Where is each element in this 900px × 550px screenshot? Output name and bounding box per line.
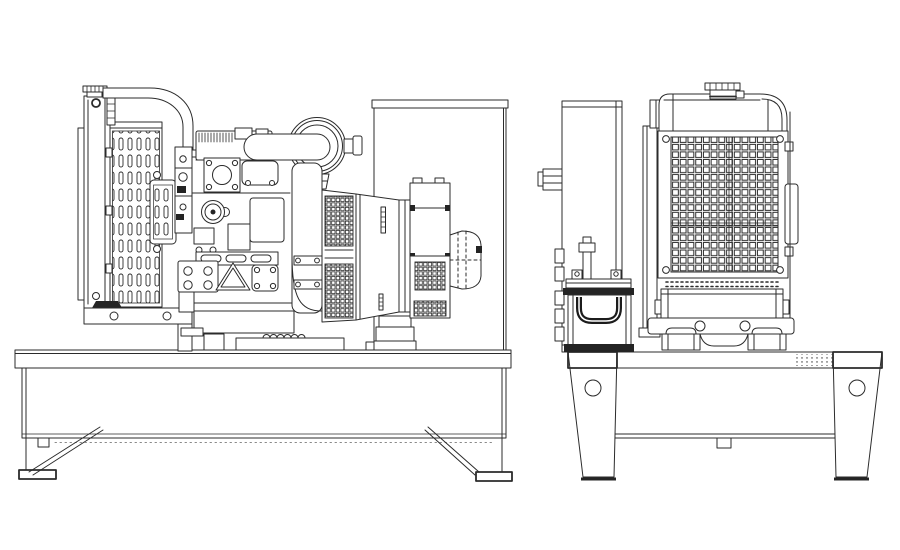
alternator (322, 190, 417, 350)
engine-mount-pedestal (204, 334, 224, 350)
front-left-leg (568, 352, 617, 477)
mid-pedestal (236, 338, 344, 350)
flywheel-housing (292, 163, 322, 313)
belt-guard-plate (150, 172, 176, 253)
drawing-page (0, 0, 900, 550)
front-view (538, 83, 882, 479)
pillar-side-box (543, 169, 562, 190)
base-frame-side (15, 334, 512, 481)
core-grille (671, 137, 778, 272)
generator-outline-drawing (0, 0, 900, 550)
front-right-leg (833, 352, 882, 477)
base-frame-front (568, 352, 882, 479)
radiator-foot-bracket (92, 301, 122, 308)
alternator-outlet-grille (325, 264, 353, 318)
intake-hose (244, 134, 330, 160)
filler-cap (705, 83, 744, 99)
alternator-inlet-grille (325, 196, 353, 246)
radiator-front (639, 83, 798, 350)
terminal-box-vent-upper (415, 262, 445, 290)
terminal-box-vent-lower (414, 301, 446, 316)
side-view (15, 86, 512, 481)
